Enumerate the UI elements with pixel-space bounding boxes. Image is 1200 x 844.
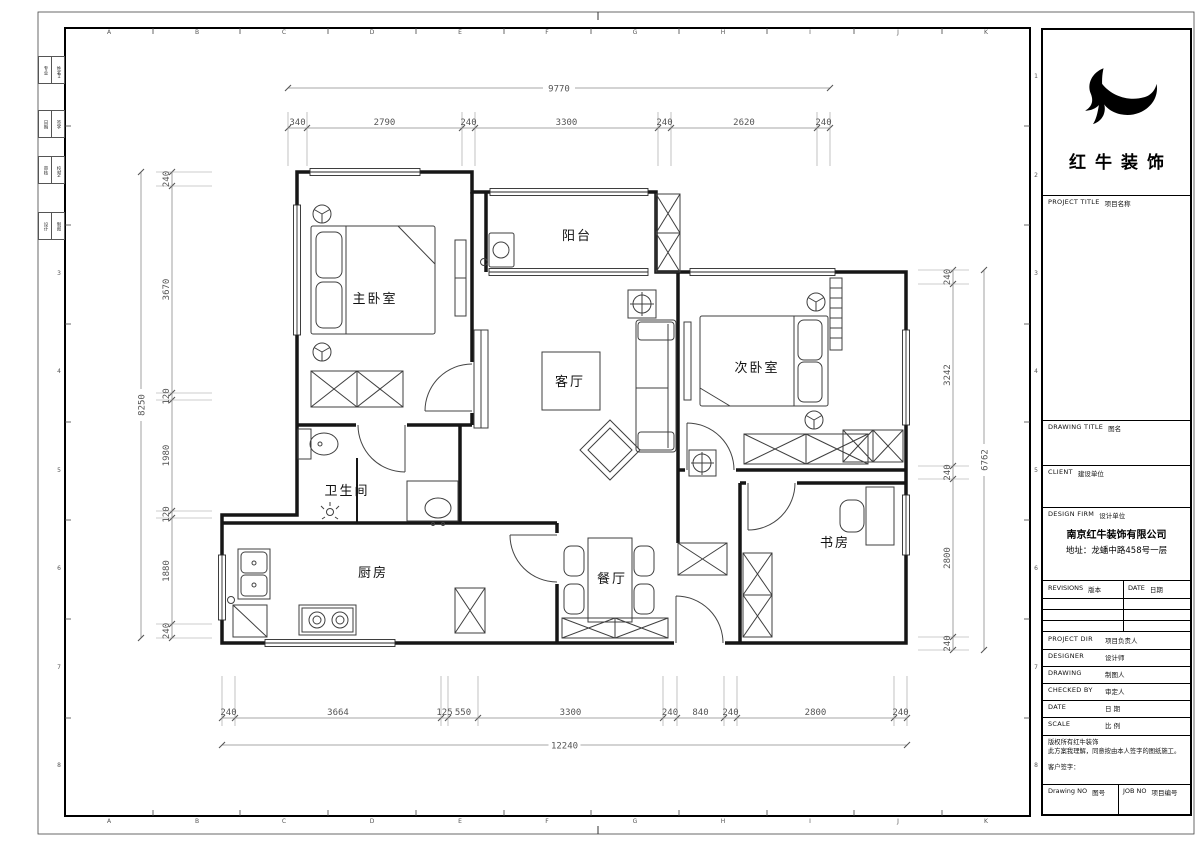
drawing-title-row: DRAWING TITLE 图名 [1048, 423, 1121, 433]
divider [1043, 717, 1190, 718]
divider [1043, 507, 1190, 508]
dim-label: 3300 [556, 118, 578, 128]
door-openings [356, 362, 797, 647]
client-label-en: CLIENT [1048, 468, 1073, 478]
dim-label: 1980 [162, 445, 172, 467]
kitchen-sink-icon [238, 549, 270, 599]
divider [1043, 420, 1190, 421]
dim-label: 240 [815, 118, 831, 128]
grid-ref-letter: I [804, 818, 816, 826]
grid-ref-letter: A [103, 29, 115, 37]
room-label-living-room: 客厅 [555, 374, 585, 390]
date-col-header: DATE 日期 [1128, 584, 1163, 594]
grid-ref-letter: F [541, 29, 553, 37]
main-frame [65, 28, 1030, 816]
dim-label: 240 [943, 635, 953, 651]
job-no-label-en: JOB NO [1123, 787, 1147, 797]
checked-by-row: CHECKED BY 审定人 [1048, 686, 1125, 696]
title-block: 红牛装饰 PROJECT TITLE 项目名称 DRAWING TITLE 图名… [1041, 28, 1192, 816]
signoff-cell-group: 日期签字 [38, 110, 65, 138]
dim-label: 3664 [327, 708, 349, 718]
divider [1123, 580, 1124, 631]
grid-ref-number: 4 [55, 368, 63, 376]
signoff-strip: 专业姓名日期签字审核校对设计制图 [38, 28, 65, 816]
drawing-label-en: DRAWING [1048, 669, 1100, 679]
divider [1043, 465, 1190, 466]
grid-ref-letter: E [454, 29, 466, 37]
room-label-balcony: 阳台 [562, 229, 592, 244]
dim-label: 240 [662, 708, 678, 718]
divider [1043, 666, 1190, 667]
sofa-icon [636, 320, 676, 452]
grid-ref-number: 8 [55, 762, 63, 770]
dim-label: 3300 [560, 708, 582, 718]
brand-name: 红牛装饰 [1043, 148, 1190, 173]
tv-cabinet-icon [474, 330, 488, 428]
brand-logo-icon [1071, 56, 1163, 140]
scale-label-en: SCALE [1048, 720, 1100, 730]
grid-ref-number: 2 [55, 172, 63, 180]
coffee-table-icon [580, 420, 640, 480]
revisions-label-cn: 版本 [1088, 584, 1101, 594]
divider [1043, 609, 1190, 610]
cabinet-icon [656, 194, 680, 272]
stove-icon [299, 605, 356, 635]
job-no-label-cn: 项目编号 [1152, 787, 1178, 797]
dim-total-label: 8250 [138, 394, 148, 416]
checked-by-label-cn: 审定人 [1105, 686, 1125, 696]
grid-ref-letter: C [278, 818, 290, 826]
dim-label: 2800 [805, 708, 827, 718]
date-label-cn: 日 期 [1105, 703, 1120, 713]
divider [1043, 683, 1190, 684]
dim-label: 240 [162, 171, 172, 187]
divider [1043, 735, 1190, 736]
dim-label: 240 [892, 708, 908, 718]
design-firm-row: DESIGN FIRM 设计单位 [1048, 510, 1125, 520]
ceiling-lamp-icon [628, 290, 716, 476]
window-niche [455, 240, 466, 316]
drawing-title-label-cn: 图名 [1108, 423, 1121, 433]
room-label-study: 书房 [820, 535, 850, 551]
cabinet-icon [743, 553, 772, 637]
divider [1043, 649, 1190, 650]
grid-ref-letter: H [717, 29, 729, 37]
cabinet-icon [455, 588, 485, 633]
dim-label: 550 [455, 708, 471, 718]
grid-ref-number: 6 [55, 565, 63, 573]
room-labels: 主卧室 阳台 次卧室 客厅 卫生间 厨房 餐厅 书房 [324, 229, 850, 587]
grid-ref-number: 3 [55, 270, 63, 278]
cabinet-icon [678, 543, 727, 575]
dim-label: 120 [162, 506, 172, 522]
grid-ref-letter: A [103, 818, 115, 826]
dim-label: 120 [162, 388, 172, 404]
grid-ref-letter: K [980, 818, 992, 826]
room-label-second-bedroom: 次卧室 [734, 360, 779, 376]
divider [1043, 700, 1190, 701]
room-label-bathroom: 卫生间 [324, 484, 369, 499]
copyright-line2: 此方案我理解，同意按由本人签字的图纸施工。 [1048, 747, 1186, 757]
dim-label: 3670 [162, 279, 172, 301]
room-label-master-bedroom: 主卧室 [352, 291, 397, 307]
signoff-cell: 审核 [39, 157, 52, 183]
dim-label: 240 [656, 118, 672, 128]
grid-ref-letter: D [366, 29, 378, 37]
dim-label: 125 [436, 708, 452, 718]
date-col-label-cn: 日期 [1150, 584, 1163, 594]
scale-row: SCALE 比 例 [1048, 720, 1120, 730]
drawing-no-label-cn: 图号 [1092, 787, 1105, 797]
room-label-kitchen: 厨房 [358, 565, 388, 581]
grid-ref-letter: D [366, 818, 378, 826]
date-row: DATE 日 期 [1048, 703, 1120, 713]
dim-label: 3242 [943, 364, 953, 386]
drawing-title-label-en: DRAWING TITLE [1048, 423, 1103, 433]
signoff-cell: 设计 [39, 213, 52, 239]
grid-ref-letter: B [191, 818, 203, 826]
company-address: 地址：龙蟠中路458号一层 [1043, 544, 1190, 556]
revisions-header: REVISIONS 版本 [1048, 584, 1101, 594]
grid-ref-number: 2 [1032, 172, 1040, 180]
floor-plan-canvas: 主卧室 阳台 次卧室 客厅 卫生间 厨房 餐厅 书房 3402790240330… [0, 0, 1200, 844]
dim-label: 240 [943, 269, 953, 285]
company-name: 南京红牛装饰有限公司 [1043, 526, 1190, 541]
client-label-cn: 建设单位 [1078, 468, 1104, 478]
dim-total-label: 6762 [981, 449, 991, 471]
shower-lamp-icon [321, 502, 339, 519]
grid-ref-number: 5 [1032, 467, 1040, 475]
drawing-no-label-en: Drawing NO [1048, 787, 1087, 797]
grid-ref-number: 5 [55, 467, 63, 475]
designer-row: DESIGNER 设计师 [1048, 652, 1125, 662]
divider [1118, 784, 1119, 814]
grid-ref-number: 6 [1032, 565, 1040, 573]
washbasin-icon [407, 481, 458, 526]
floor-drain-icon [228, 597, 235, 604]
dim-label: 840 [692, 708, 708, 718]
dim-label: 240 [220, 708, 236, 718]
scale-label-cn: 比 例 [1105, 720, 1120, 730]
project-title-label-cn: 项目名称 [1105, 198, 1131, 208]
client-signature-label: 客户签字： [1048, 763, 1186, 773]
tv-board-icon [684, 322, 691, 400]
grid-ref-letter: B [191, 29, 203, 37]
grid-ref-number: 4 [1032, 368, 1040, 376]
cabinet-icon [744, 434, 868, 464]
designer-label-en: DESIGNER [1048, 652, 1100, 662]
sheet-border [38, 12, 1194, 834]
grid-ref-letter: I [804, 29, 816, 37]
toilet-icon [298, 429, 338, 459]
divider [1043, 580, 1190, 581]
master-bed-icon [311, 226, 435, 334]
grid-ref-number: 8 [1032, 762, 1040, 770]
cabinet-icon [562, 618, 668, 638]
grid-ref-letter: H [717, 818, 729, 826]
job-no-cell: JOB NO 项目编号 [1123, 787, 1178, 797]
dim-total-label: 9770 [548, 85, 570, 95]
drawing-sheet: 主卧室 阳台 次卧室 客厅 卫生间 厨房 餐厅 书房 3402790240330… [0, 0, 1200, 844]
signoff-cell: 专业 [39, 57, 52, 83]
dim-label: 2800 [943, 547, 953, 569]
design-firm-label-cn: 设计单位 [1099, 510, 1125, 520]
fridge-icon [233, 605, 267, 637]
grid-ref-number: 1 [55, 73, 63, 81]
signoff-cell: 日期 [39, 111, 52, 137]
divider [1043, 195, 1190, 196]
grid-ref-letter: E [454, 818, 466, 826]
dim-label: 240 [460, 118, 476, 128]
grid-ref-number: 7 [55, 664, 63, 672]
grid-ref-letter: G [629, 818, 641, 826]
cabinet-icon [311, 371, 403, 407]
dim-label: 340 [289, 118, 305, 128]
divider [1043, 631, 1190, 632]
grid-ref-number: 7 [1032, 664, 1040, 672]
project-dir-row: PROJECT DIR 项目负责人 [1048, 635, 1138, 645]
grid-ref-letter: K [980, 29, 992, 37]
grid-ref-letter: J [892, 818, 904, 826]
cabinet-icon [843, 430, 903, 462]
divider [1043, 598, 1190, 599]
grid-ref-number: 1 [1032, 73, 1040, 81]
date-col-label-en: DATE [1128, 584, 1145, 594]
signoff-cell-group: 设计制图 [38, 212, 65, 240]
dim-label: 240 [722, 708, 738, 718]
grid-ref-letter: J [892, 29, 904, 37]
drawing-row: DRAWING 制图人 [1048, 669, 1125, 679]
bedside-stool-icon [805, 293, 825, 429]
dim-label: 1880 [162, 560, 172, 582]
radiator-icon [830, 278, 842, 350]
grid-ref-letter: C [278, 29, 290, 37]
divider [1043, 784, 1190, 785]
grid-ref-letter: G [629, 29, 641, 37]
grid-ref-letter: F [541, 818, 553, 826]
project-title-label-en: PROJECT TITLE [1048, 198, 1100, 208]
signoff-cell: 签字 [52, 111, 64, 137]
bedside-stool-icon [313, 205, 331, 361]
client-row: CLIENT 建设单位 [1048, 468, 1104, 478]
drawing-no-cell: Drawing NO 图号 [1048, 787, 1105, 797]
project-dir-label-cn: 项目负责人 [1105, 635, 1138, 645]
project-title-row: PROJECT TITLE 项目名称 [1048, 198, 1131, 208]
design-firm-label-en: DESIGN FIRM [1048, 510, 1094, 520]
grid-ref-number: 3 [1032, 270, 1040, 278]
project-dir-label-en: PROJECT DIR [1048, 635, 1100, 645]
room-label-dining-room: 餐厅 [597, 571, 627, 587]
divider [1043, 620, 1190, 621]
drawing-label-cn: 制图人 [1105, 669, 1125, 679]
revisions-label-en: REVISIONS [1048, 584, 1083, 594]
designer-label-cn: 设计师 [1105, 652, 1125, 662]
dim-label: 240 [943, 464, 953, 480]
date-label-en: DATE [1048, 703, 1100, 713]
dim-label: 240 [162, 623, 172, 639]
dim-total-label: 12240 [551, 742, 578, 752]
signoff-cell: 制图 [52, 213, 64, 239]
dim-label: 2620 [733, 118, 755, 128]
dim-label: 2790 [374, 118, 396, 128]
checked-by-label-en: CHECKED BY [1048, 686, 1100, 696]
